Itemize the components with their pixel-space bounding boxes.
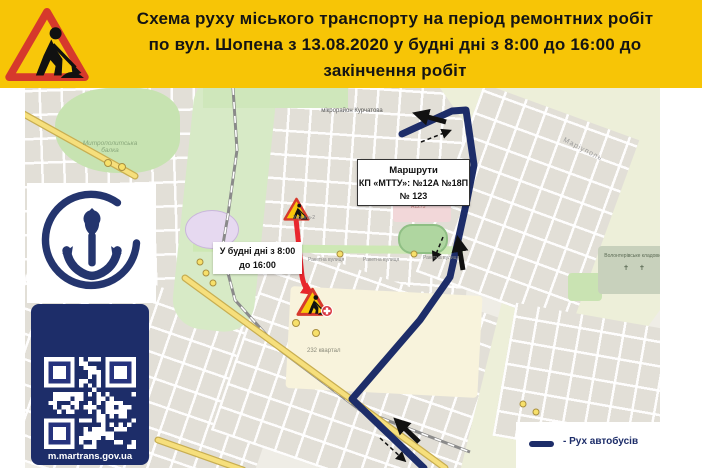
page-title: Схема руху міського транспорту на період… <box>92 5 698 85</box>
hospital-cross-marker <box>322 306 333 317</box>
schedule-line-2: до 16:00 <box>213 258 302 272</box>
qr-caption: m.martrans.gov.ua <box>31 451 149 462</box>
label-cemetery: Волонтерівське кладовище <box>601 254 660 260</box>
page-margin-left <box>0 88 25 468</box>
schedule-label-box: У будні дні з 8:00 до 16:00 <box>213 242 302 274</box>
legend-bus-label: - Рух автобусів <box>563 436 638 447</box>
legend-box: - Рух автобусів <box>516 422 702 468</box>
qr-code-icon <box>44 354 136 452</box>
martrans-logo-box <box>27 183 156 303</box>
title-line-3: закінчення робіт <box>92 58 698 84</box>
title-line-1: Схема руху міського транспорту на період… <box>92 6 698 32</box>
qr-code-box: m.martrans.gov.ua <box>31 304 149 465</box>
label-kvartal: 232 квартал <box>307 348 340 355</box>
label-district: мікрорайон Курчатова <box>321 108 383 115</box>
label-street-raketna-3: Ракетна вулиця <box>423 256 459 262</box>
routes-line-3: № 123 <box>358 190 469 203</box>
anchor-logo-icon <box>39 190 145 296</box>
label-street-raketna-2: Ракетна вулиця <box>363 258 399 264</box>
roadwork-sign-icon <box>4 3 90 86</box>
routes-line-2: КП «МТТУ»: №12А №18П <box>358 177 469 190</box>
page-margin-right <box>660 88 702 468</box>
title-line-2: по вул. Шопена з 13.08.2020 у будні дні … <box>92 32 698 58</box>
legend-route-line-icon <box>529 441 554 447</box>
routes-title: Маршрути <box>358 164 469 177</box>
label-ukraina: Україна-2 <box>293 216 315 222</box>
label-street-raketna-1: Ракетна вулиця <box>308 258 344 264</box>
label-park: Митрополитська балка <box>77 140 143 155</box>
header-banner: Схема руху міського транспорту на період… <box>0 0 702 88</box>
routes-label-box: Маршрути КП «МТТУ»: №12А №18П № 123 <box>357 159 470 206</box>
schedule-line-1: У будні дні з 8:00 <box>213 244 302 258</box>
